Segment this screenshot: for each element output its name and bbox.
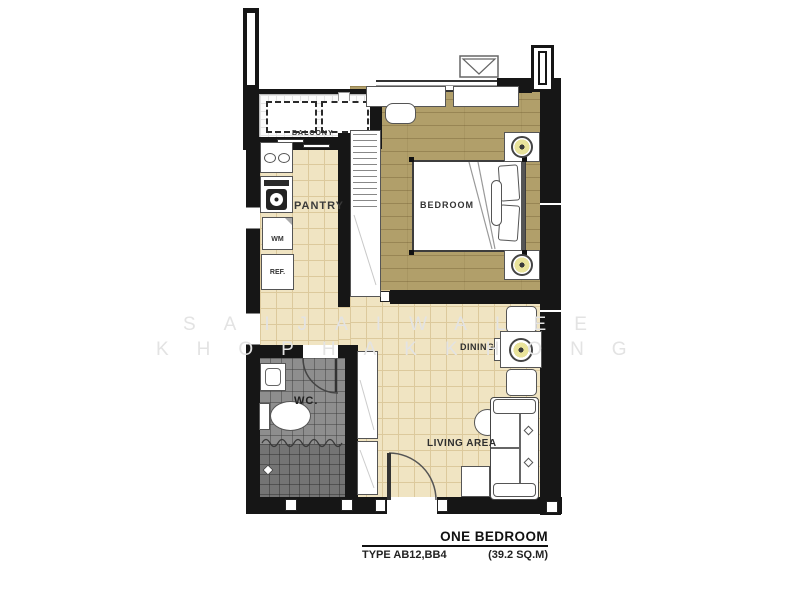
ac-condenser-unit xyxy=(321,101,369,133)
hall-cabinet xyxy=(357,441,378,495)
pantry-label: PANTRY xyxy=(294,200,344,212)
bedroom-bottom-wall xyxy=(390,290,540,304)
left-column-slot xyxy=(247,13,255,85)
sofa-armrest xyxy=(493,399,536,414)
stove xyxy=(260,176,293,213)
bedroom-door-jamb xyxy=(380,291,390,302)
wardrobe xyxy=(350,130,381,297)
wc-label: WC. xyxy=(294,395,318,407)
entrance-opening xyxy=(387,497,437,514)
headboard xyxy=(521,162,525,250)
bedroom-label: BEDROOM xyxy=(420,200,474,210)
plan-caption: ONE BEDROOM TYPE AB12,BB4 (39.2 SQ.M) xyxy=(362,529,548,561)
window-bench xyxy=(453,86,519,107)
toilet-tank xyxy=(259,403,270,430)
stool xyxy=(385,103,416,124)
right-wall xyxy=(540,78,561,515)
washing-machine: WM xyxy=(262,217,293,250)
sink-basin xyxy=(264,153,276,163)
top-right-column-slot xyxy=(538,51,547,85)
sink-basin xyxy=(278,153,290,163)
left-wall-mid xyxy=(246,229,260,313)
plan-area: (39.2 SQ.M) xyxy=(488,549,548,561)
bed-corner-dot xyxy=(409,157,414,162)
caption-divider xyxy=(362,545,548,547)
balcony-top-wall xyxy=(256,89,376,94)
refrigerator: REF. xyxy=(261,254,294,290)
plan-title: ONE BEDROOM xyxy=(362,529,548,544)
dining-chair xyxy=(506,369,537,396)
refrigerator-label: REF. xyxy=(270,269,285,276)
right-wall-seam xyxy=(540,203,561,205)
bottom-wall-column xyxy=(341,499,353,511)
tv-cabinet xyxy=(461,466,490,497)
bottom-wall-column xyxy=(285,499,297,511)
bed-corner-dot xyxy=(409,250,414,255)
left-wall-upper xyxy=(246,149,260,207)
window-vent-box xyxy=(460,56,498,77)
bedside-lamp-icon xyxy=(511,254,533,276)
corner-column xyxy=(546,501,558,513)
entrance-jamb-left xyxy=(375,499,386,512)
ac-condenser-unit xyxy=(266,101,317,133)
watermark-line-1: SAIJAIWALEE xyxy=(183,314,615,336)
living-area-label: LIVING AREA xyxy=(427,438,497,449)
left-window xyxy=(246,207,260,229)
balcony-door-panel xyxy=(303,144,330,148)
washing-machine-label: WM xyxy=(271,236,283,243)
entrance-jamb-right xyxy=(437,499,448,512)
wardrobe-hanger-rack xyxy=(353,134,377,210)
balcony-label: BALCONY xyxy=(292,130,334,137)
stove-burner-ring xyxy=(270,193,283,206)
bedside-lamp-icon xyxy=(511,136,533,158)
window-vent-triangle-icon xyxy=(463,59,495,74)
hall-cabinet xyxy=(357,351,378,439)
door-swing-mark xyxy=(285,218,292,225)
plan-type: TYPE AB12,BB4 xyxy=(362,549,447,561)
sofa-armrest xyxy=(493,483,536,497)
watermark-line-2: KHOPHAKKHONG xyxy=(156,339,655,361)
pantry-bedroom-wall xyxy=(338,120,350,307)
wc-sink-basin xyxy=(265,368,281,386)
bolster-pillow xyxy=(491,180,502,226)
right-wall-seam xyxy=(540,310,561,312)
stove-controls xyxy=(264,180,289,186)
left-wall-lower xyxy=(246,345,260,497)
floor-plan-page: WM REF. xyxy=(0,0,800,594)
kitchen-sink xyxy=(260,142,293,173)
wc-sink xyxy=(260,363,286,391)
